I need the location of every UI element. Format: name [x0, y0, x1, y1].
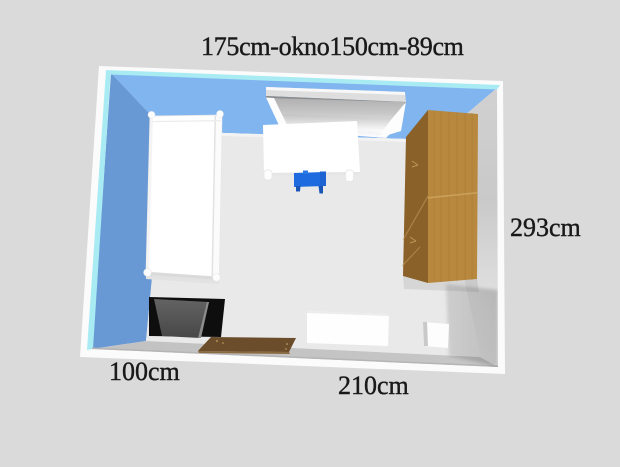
svg-text:293cm: 293cm [510, 213, 581, 242]
svg-text:100cm: 100cm [109, 357, 180, 386]
svg-text:210cm: 210cm [338, 371, 409, 400]
svg-text:175cm-okno150cm-89cm: 175cm-okno150cm-89cm [201, 32, 464, 61]
